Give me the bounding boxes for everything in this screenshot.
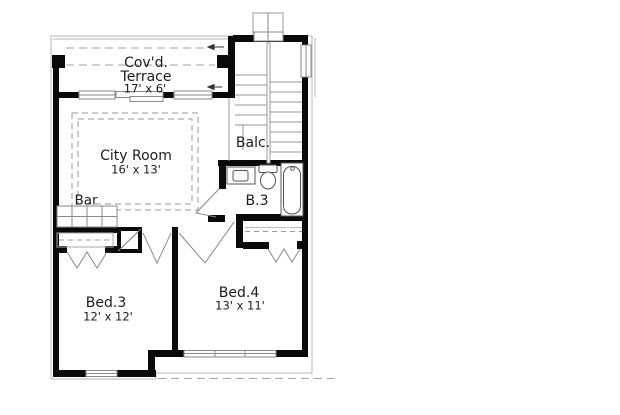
terrace-dims-label: 17' x 6' [124,83,166,95]
wall-closet-west [236,214,243,248]
wall-hall-south [53,227,117,233]
terrace-label-line1: Cov'd. [124,56,168,70]
dimension-arrow-icon [208,85,222,90]
dimension-arrow-icon [208,45,224,50]
sink-vanity-fixture [227,167,255,184]
bar-label: Bar [74,194,97,208]
city-room-label: City Room [100,149,172,163]
bed3-closet-doors [67,252,107,268]
wall-closet-south-right [297,241,308,249]
bath-door [196,189,219,217]
bath-label: B.3 [246,194,269,208]
wall-bath-west [219,160,226,189]
wall-closet-south-left [243,242,269,249]
bed4-dims-label: 13' x 11' [215,300,265,312]
bar-counter [57,206,117,227]
bed4-closet-doors [268,249,300,262]
bathtub-fixture [281,163,303,216]
bed4-door [179,222,234,263]
bed3-label: Bed.3 [86,296,126,310]
door-swings [143,189,234,263]
bed3-door [143,233,171,263]
stair-side-window [301,45,311,77]
terrace-window [79,91,115,99]
terrace-window [174,91,212,99]
wall-stair-west [228,36,235,98]
bed3-dims-label: 12' x 12' [83,311,133,323]
city-room-dims-label: 16' x 13' [111,164,161,176]
bed3-window [86,371,117,377]
wall-bed-divider [172,227,178,353]
stair-window-bay [253,13,283,41]
toilet-fixture [259,165,277,189]
utility-closet [118,229,141,251]
balcony-label: Balc. [236,136,270,150]
bed4-window [184,351,276,358]
floor-plan-canvas: Cov'd. Terrace 17' x 6' City Room 16' x … [0,0,620,415]
